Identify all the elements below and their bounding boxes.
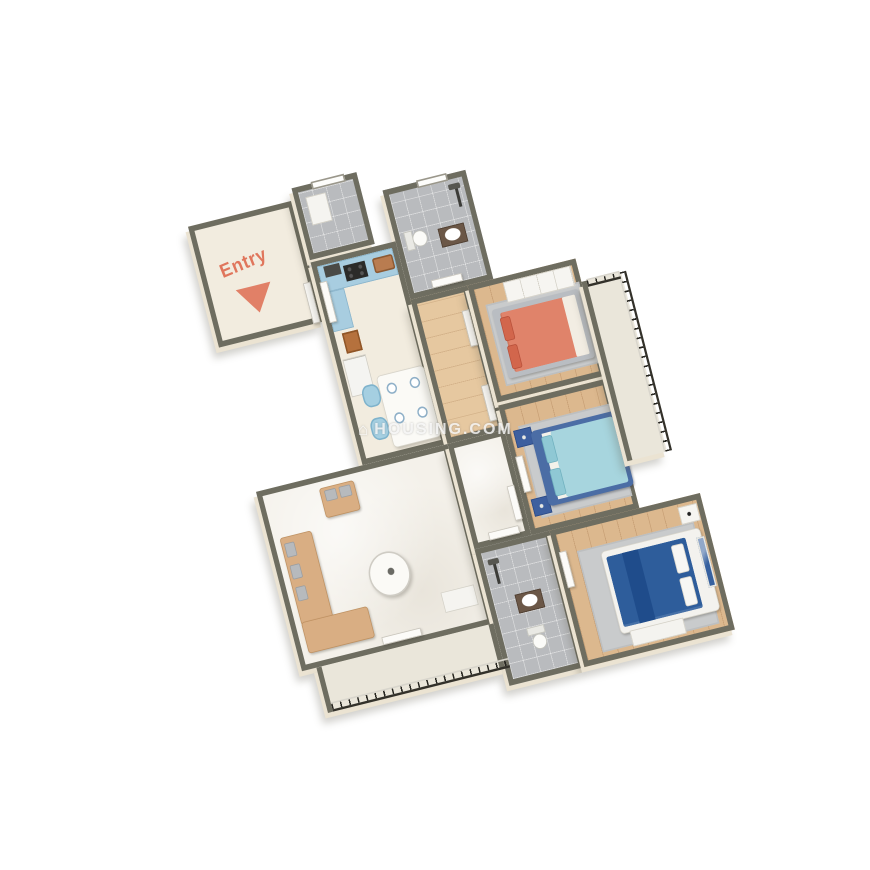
coffee-table	[364, 547, 416, 601]
entry-arrow-icon	[236, 282, 277, 317]
nightstand	[678, 503, 701, 525]
shower-pole-icon	[454, 186, 462, 207]
entry-label: Entry	[217, 243, 271, 283]
doormat	[342, 330, 363, 354]
watermark: ⌂ HOUSING.COM	[358, 420, 513, 440]
balcony-railing-return	[586, 271, 621, 287]
shower-pole-icon	[493, 563, 501, 584]
bathroom1-door	[431, 273, 463, 288]
living-balcony-railing	[331, 658, 511, 712]
washer	[305, 192, 332, 225]
floorplan-stage: Entry	[0, 0, 870, 870]
bathroom1-window	[416, 173, 448, 188]
housing-logo-icon: ⌂	[358, 420, 370, 440]
shower-head-icon	[487, 558, 499, 566]
utility-window	[311, 174, 346, 190]
vanity-sink	[515, 588, 546, 613]
toilet	[531, 632, 548, 650]
balcony-railing	[618, 271, 672, 452]
watermark-text: HOUSING.COM	[374, 421, 512, 439]
vanity-sink	[438, 223, 469, 248]
cabinet	[440, 584, 478, 613]
